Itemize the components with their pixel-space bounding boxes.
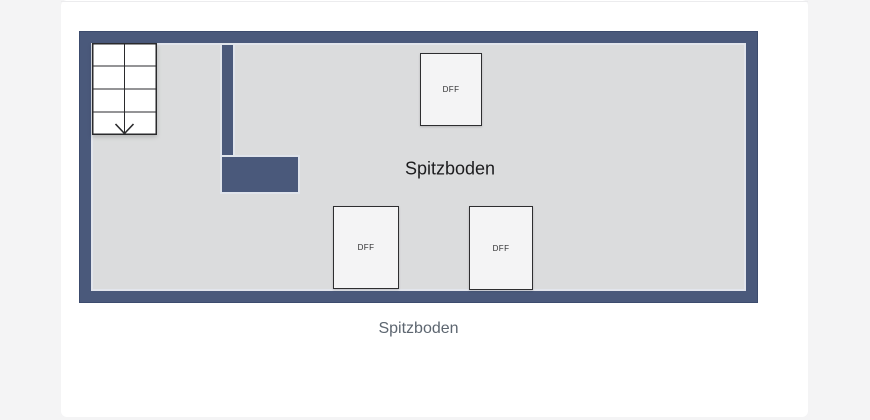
roof-window-top: DFF	[420, 53, 482, 126]
interior-wall-block	[222, 157, 298, 192]
roof-window-label: DFF	[358, 243, 375, 252]
screenshot-root: DFF DFF DFF Spitzboden Spitzboden	[0, 0, 870, 420]
roof-window-bottom-right: DFF	[469, 206, 533, 290]
floorplan-canvas: DFF DFF DFF Spitzboden	[61, 0, 808, 417]
roof-window-bottom-left: DFF	[333, 206, 399, 289]
roof-window-label: DFF	[443, 85, 460, 94]
interior-wall-vertical	[222, 45, 233, 155]
room-label: Spitzboden	[405, 159, 495, 180]
floorplan-card: DFF DFF DFF Spitzboden Spitzboden	[61, 0, 808, 417]
roof-window-label: DFF	[493, 244, 510, 253]
floorplan-caption: Spitzboden	[79, 320, 758, 338]
staircase	[92, 43, 157, 135]
